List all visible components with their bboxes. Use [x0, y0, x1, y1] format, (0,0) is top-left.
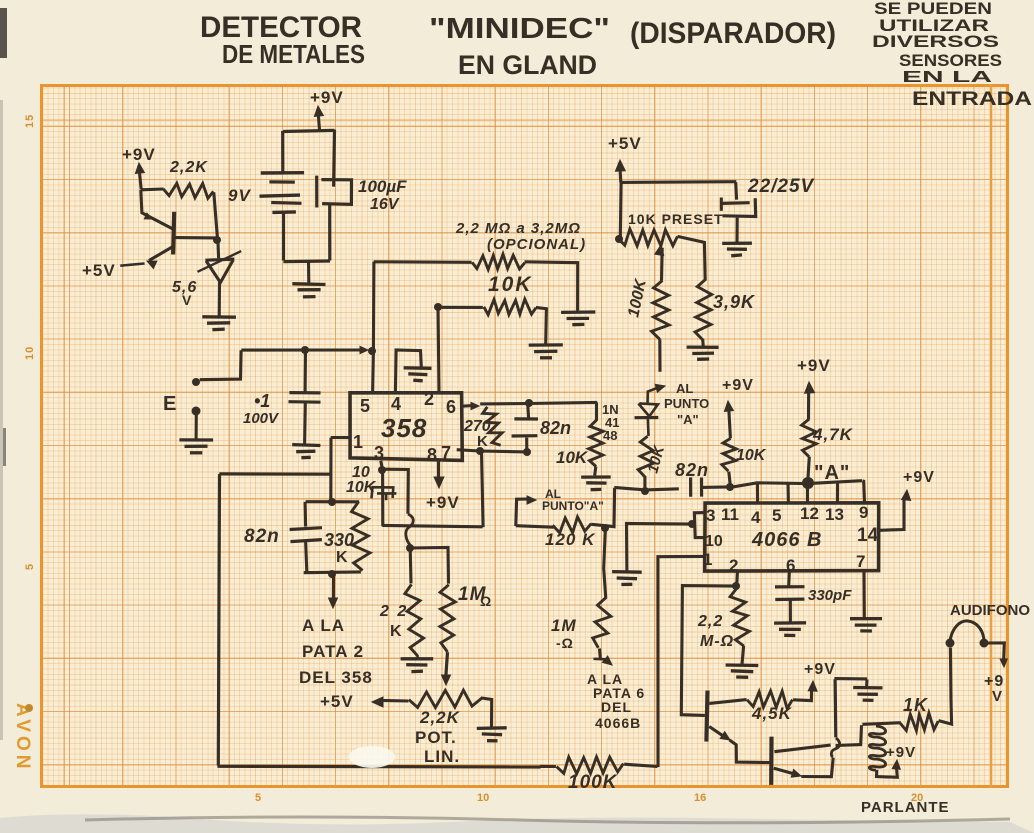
- svg-text:10: 10: [477, 792, 489, 804]
- svg-text:10K: 10K: [736, 447, 767, 464]
- svg-text:5: 5: [360, 396, 370, 416]
- svg-text:V: V: [182, 292, 192, 308]
- svg-text:12: 12: [800, 504, 819, 523]
- svg-text:+9V: +9V: [804, 661, 836, 678]
- svg-text:8: 8: [427, 445, 437, 465]
- svg-text:4: 4: [391, 394, 401, 414]
- svg-text:16: 16: [694, 792, 706, 804]
- svg-text:6: 6: [446, 397, 456, 417]
- svg-text:ENTRADA: ENTRADA: [912, 89, 1032, 110]
- svg-text:330pF: 330pF: [808, 587, 852, 604]
- svg-text:EN LA: EN LA: [902, 69, 993, 86]
- svg-text:M-Ω: M-Ω: [700, 633, 734, 650]
- svg-text:82n: 82n: [675, 460, 709, 480]
- svg-text:4066B: 4066B: [595, 715, 641, 731]
- svg-text:-Ω: -Ω: [556, 635, 574, 651]
- svg-text:82n: 82n: [540, 418, 571, 438]
- svg-text:3,9K: 3,9K: [713, 292, 756, 312]
- svg-text:10K: 10K: [346, 479, 377, 496]
- svg-text:13: 13: [825, 505, 844, 524]
- svg-text:PARLANTE: PARLANTE: [861, 799, 950, 816]
- svg-text:1K: 1K: [903, 695, 929, 715]
- svg-text:100V: 100V: [243, 410, 280, 427]
- svg-text:PUNTO: PUNTO: [664, 396, 709, 411]
- svg-text:K: K: [336, 549, 348, 566]
- svg-text:(DISPARADOR): (DISPARADOR): [630, 17, 836, 50]
- svg-text:2,2: 2,2: [697, 613, 723, 630]
- svg-text:5: 5: [772, 506, 781, 525]
- svg-text:DE METALES: DE METALES: [222, 39, 365, 69]
- svg-text:+9V: +9V: [426, 493, 460, 512]
- svg-text:3: 3: [706, 506, 715, 525]
- svg-text:82n: 82n: [244, 526, 280, 547]
- svg-text:+9V: +9V: [886, 744, 916, 761]
- svg-text:Ω: Ω: [480, 593, 491, 609]
- svg-text:+5V: +5V: [82, 261, 116, 280]
- svg-text:14: 14: [857, 525, 879, 546]
- svg-text:1: 1: [353, 432, 363, 452]
- svg-text:+9V: +9V: [797, 356, 831, 375]
- svg-text:7: 7: [856, 552, 865, 571]
- svg-text:16V: 16V: [370, 196, 400, 213]
- svg-text:1M: 1M: [551, 616, 577, 635]
- svg-text:100K: 100K: [625, 276, 650, 318]
- svg-text:+9V: +9V: [310, 88, 344, 107]
- svg-text:4,7K: 4,7K: [812, 425, 854, 444]
- svg-text:10K: 10K: [488, 273, 533, 296]
- svg-text:DEL: DEL: [601, 699, 632, 715]
- svg-text:330: 330: [324, 530, 354, 550]
- svg-text:358: 358: [381, 413, 427, 443]
- svg-text:PATA 2: PATA 2: [302, 642, 364, 661]
- svg-text:20: 20: [911, 792, 923, 804]
- svg-text:9V: 9V: [228, 186, 251, 205]
- svg-text:+9V: +9V: [903, 469, 935, 486]
- svg-text:2,2K: 2,2K: [419, 708, 461, 727]
- svg-text:•1: •1: [254, 391, 270, 411]
- svg-text:SENSORES: SENSORES: [899, 51, 1002, 70]
- svg-text:22/25V: 22/25V: [747, 176, 815, 197]
- svg-text:10: 10: [24, 346, 36, 360]
- svg-text:10K PRESET: 10K PRESET: [628, 211, 724, 227]
- svg-text:11: 11: [721, 505, 739, 524]
- svg-text:10: 10: [705, 533, 723, 550]
- svg-text:A LA: A LA: [302, 616, 345, 635]
- svg-text:9: 9: [859, 503, 868, 522]
- svg-text:K: K: [390, 623, 402, 640]
- svg-text:AUDIFONO: AUDIFONO: [950, 602, 1030, 619]
- svg-text:2,2 MΩ a 3,2MΩ: 2,2 MΩ a 3,2MΩ: [455, 220, 581, 237]
- svg-text:EN GLAND: EN GLAND: [458, 50, 597, 80]
- svg-text:POT.: POT.: [415, 728, 457, 747]
- svg-text:+9V: +9V: [722, 377, 754, 394]
- svg-text:DIVERSOS: DIVERSOS: [872, 32, 999, 51]
- svg-text:3: 3: [374, 443, 384, 463]
- svg-text:100µF: 100µF: [358, 177, 407, 196]
- svg-text:E: E: [163, 393, 176, 415]
- svg-text:"MINIDEC": "MINIDEC": [429, 13, 610, 45]
- svg-text:AVON: AVON: [12, 703, 33, 772]
- svg-text:4,5K: 4,5K: [751, 704, 793, 723]
- svg-text:5: 5: [24, 563, 36, 570]
- svg-text:4: 4: [751, 508, 761, 527]
- svg-text:1: 1: [703, 550, 712, 569]
- svg-text:15: 15: [24, 114, 36, 128]
- svg-text:5: 5: [255, 792, 261, 804]
- svg-text:2,2K: 2,2K: [169, 159, 208, 176]
- svg-text:PUNTO"A": PUNTO"A": [542, 499, 604, 513]
- svg-text:V: V: [992, 688, 1002, 705]
- svg-text:4066 B: 4066 B: [751, 529, 823, 551]
- svg-text:+5V: +5V: [320, 692, 354, 711]
- svg-text:+9V: +9V: [122, 145, 156, 164]
- svg-text:+5V: +5V: [608, 134, 642, 153]
- svg-text:(OPCIONAL): (OPCIONAL): [487, 236, 586, 253]
- svg-text:DEL 358: DEL 358: [299, 668, 373, 687]
- svg-text:AL: AL: [676, 381, 693, 396]
- svg-text:10K: 10K: [556, 448, 589, 467]
- svg-text:48: 48: [603, 428, 617, 443]
- svg-text:LIN.: LIN.: [424, 747, 460, 766]
- svg-text:120 K: 120 K: [545, 530, 596, 549]
- svg-text:2 2: 2 2: [379, 603, 408, 620]
- svg-text:"A": "A": [677, 412, 699, 427]
- svg-text:7: 7: [441, 443, 451, 463]
- svg-text:2: 2: [424, 389, 434, 409]
- svg-text:100K: 100K: [568, 772, 618, 793]
